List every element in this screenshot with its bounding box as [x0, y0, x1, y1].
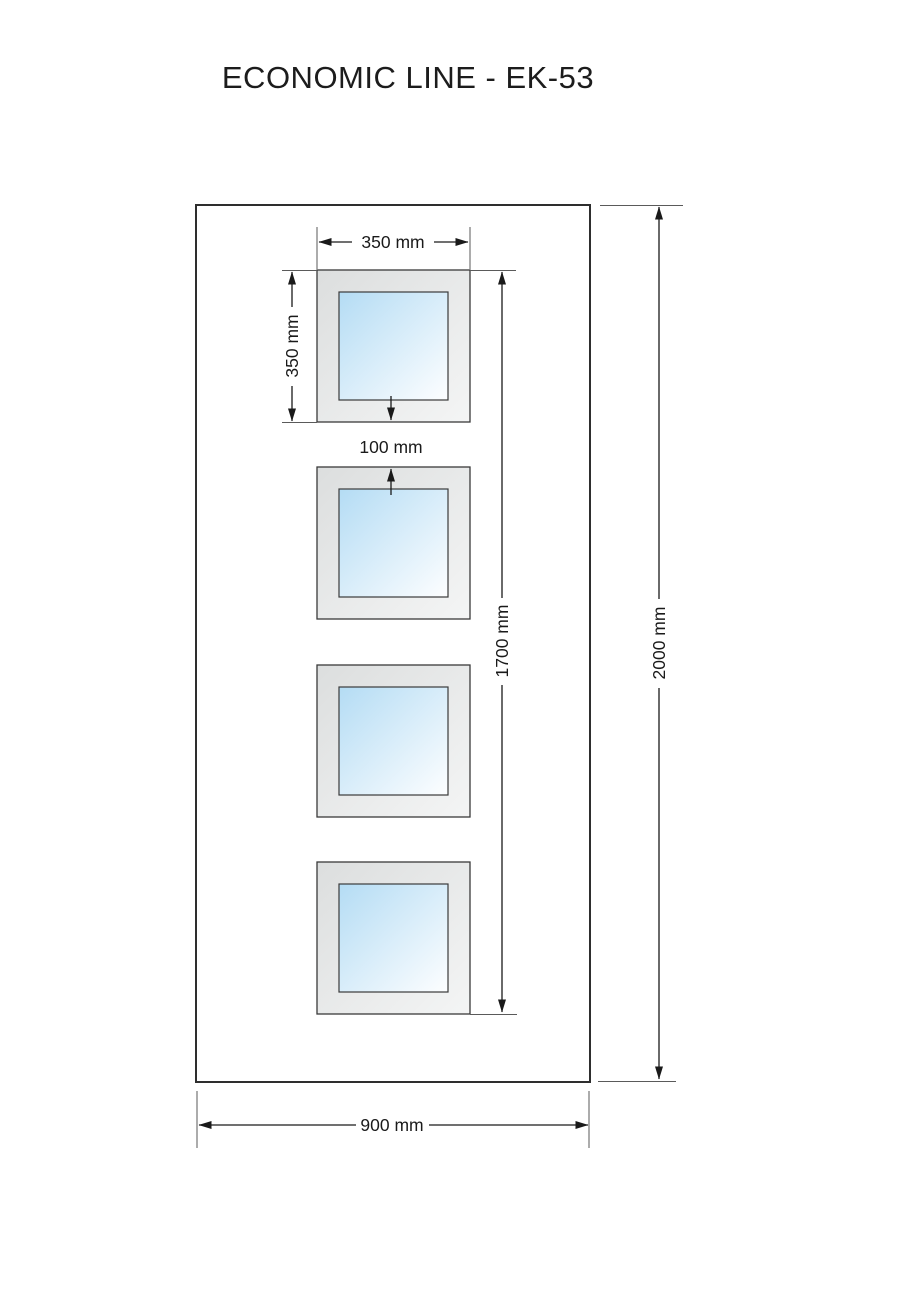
window-glass: [339, 687, 448, 795]
drawing-canvas: ECONOMIC LINE - EK-53: [0, 0, 919, 1300]
dim-label-door-height: 2000 mm: [649, 607, 669, 680]
dim-label-window-height: 350 mm: [282, 314, 302, 377]
window-1: [317, 270, 470, 422]
dim-door-width: 900 mm: [199, 1115, 588, 1135]
window-3: [317, 665, 470, 817]
window-2: [317, 467, 470, 619]
dim-label-window-gap: 100 mm: [359, 437, 422, 457]
dim-label-window-width: 350 mm: [361, 232, 424, 252]
door-diagram: 350 mm 350 mm 100 mm 1700 mm 2000 mm: [0, 0, 919, 1300]
window-4: [317, 862, 470, 1014]
dim-label-door-width: 900 mm: [360, 1115, 423, 1135]
window-glass: [339, 292, 448, 400]
window-glass: [339, 489, 448, 597]
dim-label-glazing-span: 1700 mm: [492, 605, 512, 678]
window-glass: [339, 884, 448, 992]
dim-door-height: 2000 mm: [649, 207, 669, 1079]
